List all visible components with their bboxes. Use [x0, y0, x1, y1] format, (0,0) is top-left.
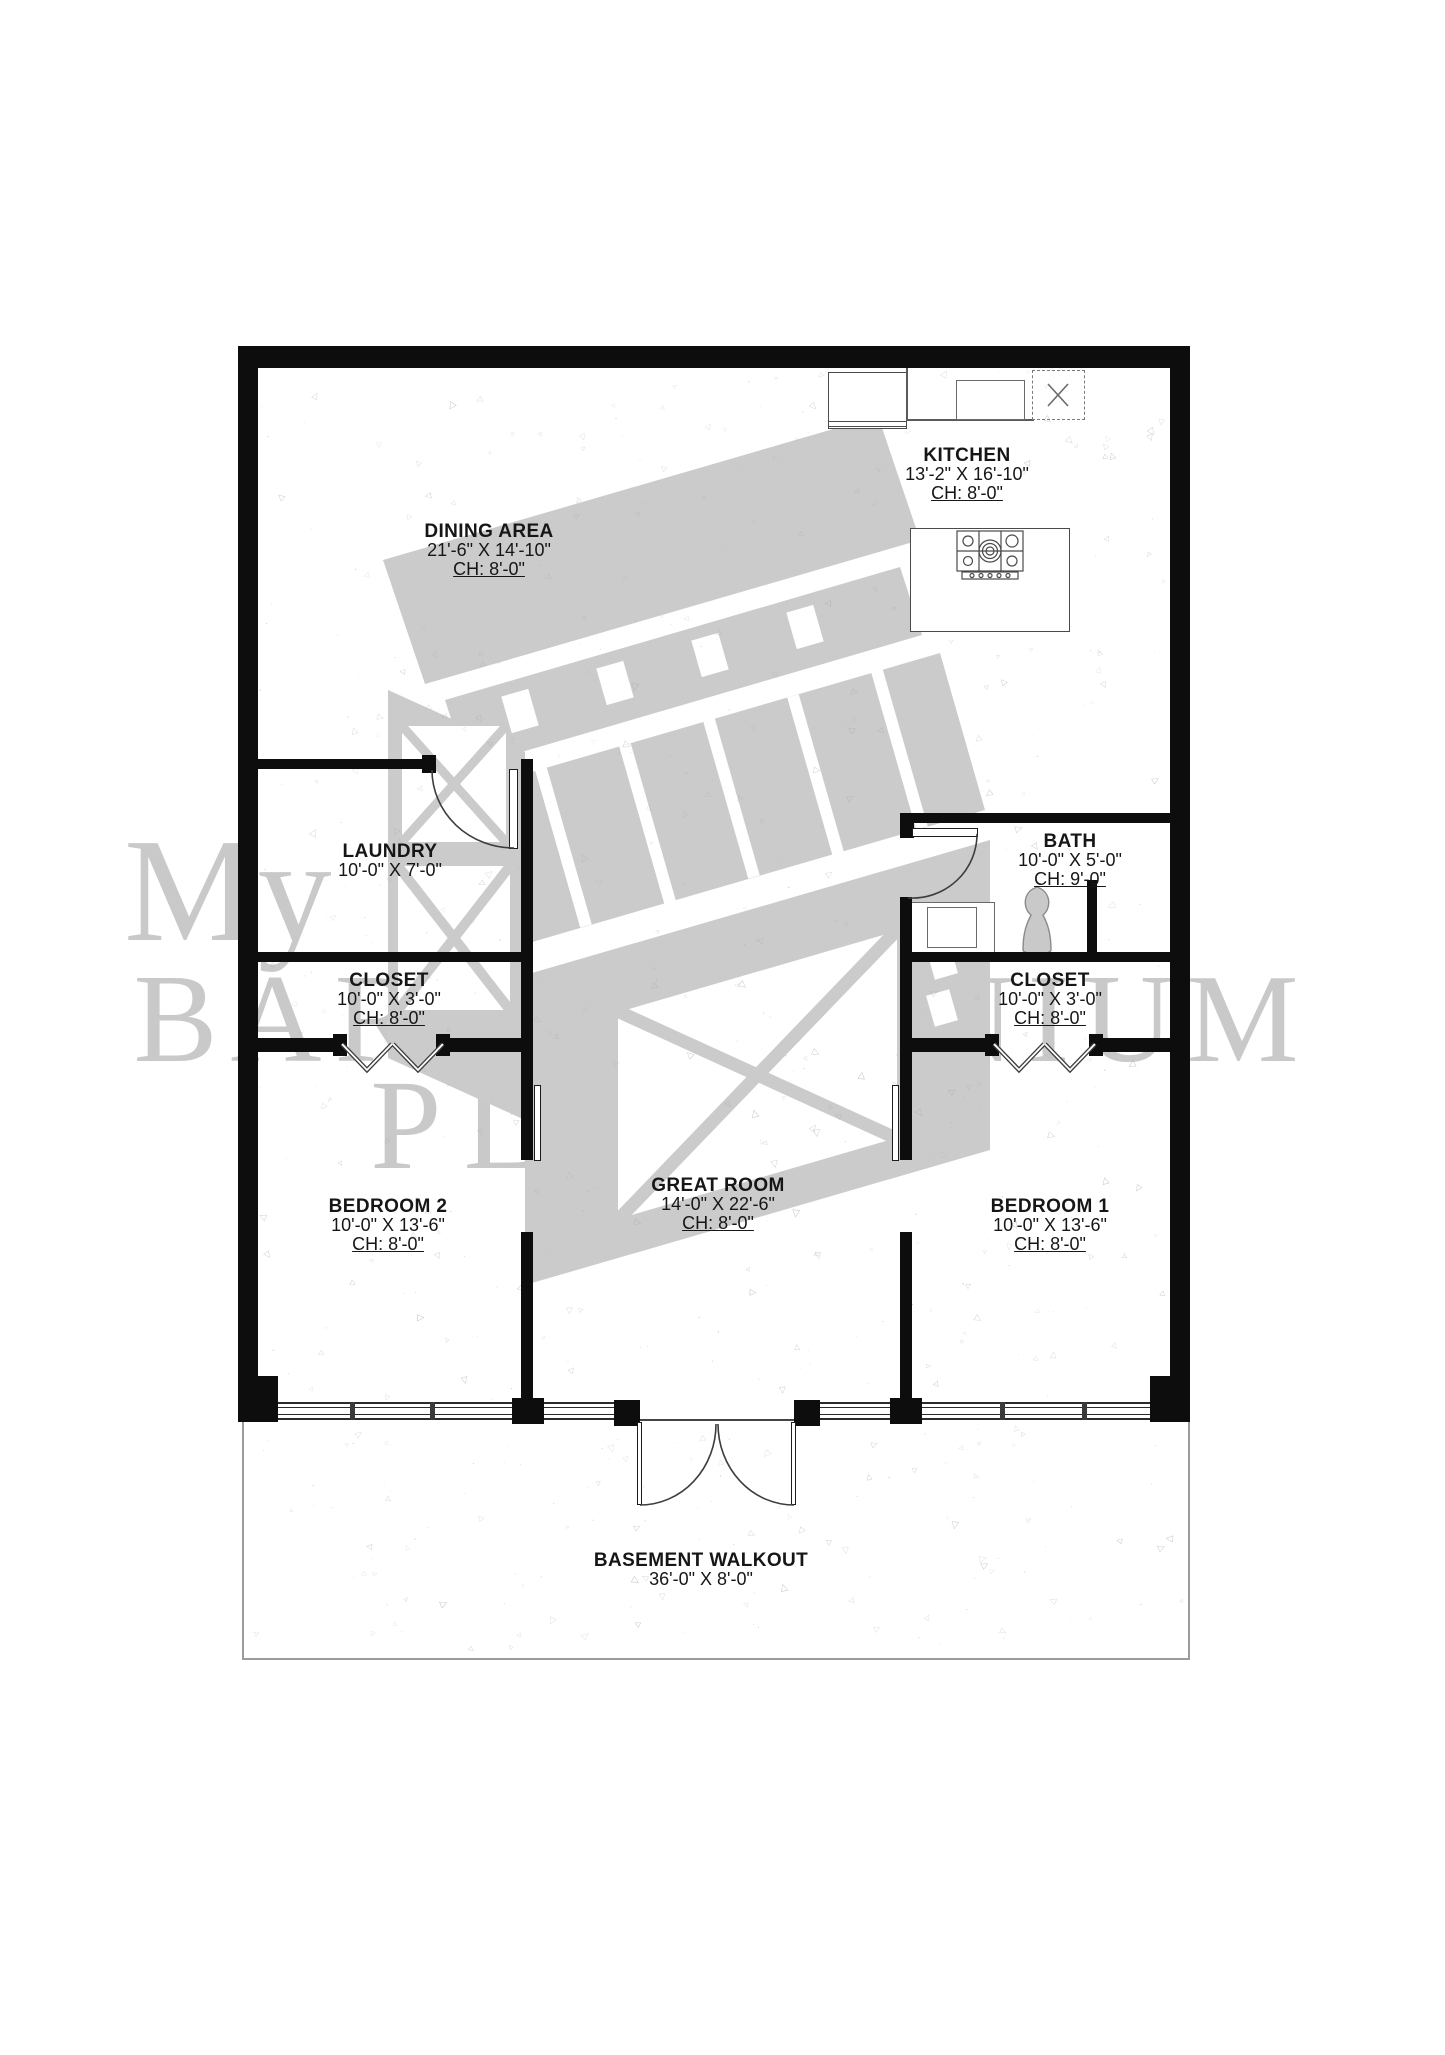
appliance-x-mark [1048, 384, 1068, 406]
room-name: BEDROOM 2 [329, 1197, 448, 1216]
room-label-bedroom1: BEDROOM 1 10'-0" X 13'-6" CH: 8'-0" [991, 1197, 1110, 1254]
room-name: GREAT ROOM [651, 1176, 784, 1195]
room-dims: 13'-2" X 16'-10" [905, 465, 1029, 484]
bath-door-arc [908, 834, 977, 898]
room-dims: 10'-0" X 13'-6" [329, 1216, 448, 1235]
room-name: CLOSET [998, 971, 1102, 990]
walkout-door-arc-right [718, 1424, 794, 1505]
room-name: BASEMENT WALKOUT [594, 1551, 808, 1570]
room-name: KITCHEN [905, 446, 1029, 465]
room-name: BEDROOM 1 [991, 1197, 1110, 1216]
room-ceiling-height: CH: 8'-0" [329, 1235, 448, 1254]
room-label-closet-right: CLOSET 10'-0" X 3'-0" CH: 8'-0" [998, 971, 1102, 1028]
room-ceiling-height: CH: 8'-0" [651, 1214, 784, 1233]
room-dims: 10'-0" X 13'-6" [991, 1216, 1110, 1235]
room-label-basement-walkout: BASEMENT WALKOUT 36'-0" X 8'-0" [594, 1551, 808, 1589]
floor-plan-page: My BARNDOMINIUM PLANS [0, 0, 1445, 2055]
room-ceiling-height: CH: 8'-0" [991, 1235, 1110, 1254]
room-ceiling-height: CH: 8'-0" [905, 484, 1029, 503]
bifold-doors [342, 1044, 1095, 1070]
room-label-bedroom2: BEDROOM 2 10'-0" X 13'-6" CH: 8'-0" [329, 1197, 448, 1254]
room-dims: 21'-6" X 14'-10" [424, 541, 553, 560]
room-label-kitchen: KITCHEN 13'-2" X 16'-10" CH: 8'-0" [905, 446, 1029, 503]
room-ceiling-height: CH: 9'-0" [1018, 870, 1122, 889]
room-dims: 10'-0" X 3'-0" [337, 990, 441, 1009]
room-name: CLOSET [337, 971, 441, 990]
room-ceiling-height: CH: 8'-0" [337, 1009, 441, 1028]
room-label-dining-area: DINING AREA 21'-6" X 14'-10" CH: 8'-0" [424, 522, 553, 579]
room-dims: 10'-0" X 3'-0" [998, 990, 1102, 1009]
room-name: BATH [1018, 832, 1122, 851]
room-label-great-room: GREAT ROOM 14'-0" X 22'-6" CH: 8'-0" [651, 1176, 784, 1233]
room-dims: 36'-0" X 8'-0" [594, 1570, 808, 1589]
room-label-laundry: LAUNDRY 10'-0" X 7'-0" [338, 842, 442, 880]
room-label-bath: BATH 10'-0" X 5'-0" CH: 9'-0" [1018, 832, 1122, 889]
walkout-door-arc-left [640, 1424, 716, 1505]
room-name: DINING AREA [424, 522, 553, 541]
room-name: LAUNDRY [338, 842, 442, 861]
door-swing-arcs [0, 0, 1445, 2055]
room-dims: 14'-0" X 22'-6" [651, 1195, 784, 1214]
room-dims: 10'-0" X 5'-0" [1018, 851, 1122, 870]
room-label-closet-left: CLOSET 10'-0" X 3'-0" CH: 8'-0" [337, 971, 441, 1028]
room-ceiling-height: CH: 8'-0" [998, 1009, 1102, 1028]
room-dims: 10'-0" X 7'-0" [338, 861, 442, 880]
room-ceiling-height: CH: 8'-0" [424, 560, 553, 579]
laundry-door-arc [432, 770, 514, 848]
